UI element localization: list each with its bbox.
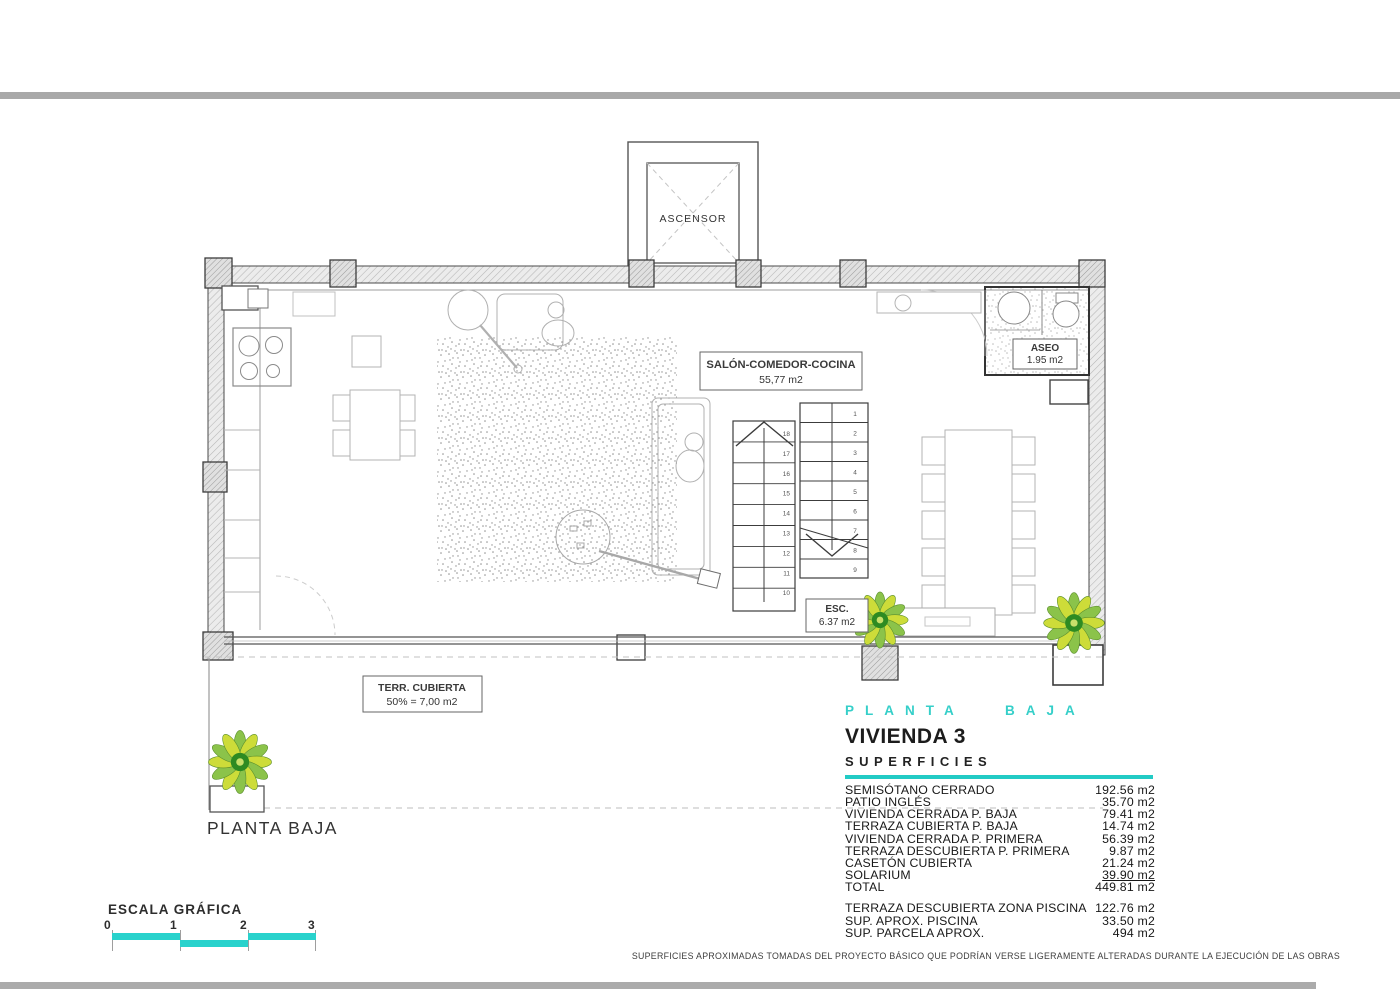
unit-title: VIVIENDA 3 bbox=[845, 725, 1155, 749]
surface-label: SUP. APROX. PISCINA bbox=[845, 915, 978, 927]
chair bbox=[1012, 585, 1035, 613]
surface-info-panel: PLANTA BAJA VIVIENDA 3 SUPERFICIES SEMIS… bbox=[845, 703, 1155, 939]
scale-bar bbox=[112, 933, 316, 949]
door-arc bbox=[276, 576, 335, 635]
scale-segment bbox=[180, 940, 248, 947]
chair bbox=[922, 511, 945, 539]
stair-step-number: 10 bbox=[783, 590, 791, 597]
aseo-label: ASEO bbox=[1031, 343, 1060, 354]
surface-label: TERRAZA DESCUBIERTA ZONA PISCINA bbox=[845, 902, 1087, 914]
surface-value: 494 m2 bbox=[1113, 927, 1155, 939]
surface-label: TOTAL bbox=[845, 881, 885, 893]
person-figure-sofa bbox=[685, 433, 703, 451]
counter bbox=[877, 292, 981, 313]
teal-rule bbox=[845, 775, 1153, 779]
stair-step-number: 5 bbox=[853, 489, 857, 496]
stair-step-number: 7 bbox=[853, 528, 857, 535]
salon-area: 55,77 m2 bbox=[759, 374, 803, 386]
floor-plan-drawing: ASCENSOR bbox=[0, 0, 1400, 989]
stair-step-number: 6 bbox=[853, 509, 857, 516]
superficies-row: TERRAZA DESCUBIERTA ZONA PISCINA122.76 m… bbox=[845, 902, 1155, 914]
floor-title: PLANTA BAJA bbox=[845, 703, 1155, 718]
superficies-row: SUP. PARCELA APROX.494 m2 bbox=[845, 927, 1155, 939]
surface-value: 14.74 m2 bbox=[1102, 820, 1155, 832]
esc-area: 6.37 m2 bbox=[819, 617, 856, 628]
stair-step-number: 14 bbox=[783, 511, 791, 518]
superficies-row: SUP. APROX. PISCINA33.50 m2 bbox=[845, 915, 1155, 927]
chair bbox=[922, 437, 945, 465]
staircase: 181716151413121110123456789 bbox=[733, 403, 868, 611]
bottom-divider-bar bbox=[0, 982, 1316, 989]
aseo-area: 1.95 m2 bbox=[1027, 355, 1064, 366]
ascensor-label: ASCENSOR bbox=[660, 213, 727, 225]
salon-label: SALÓN-COMEDOR-COCINA bbox=[706, 358, 855, 371]
stair-step-number: 12 bbox=[783, 550, 791, 557]
disclaimer-text: SUPERFICIES APROXIMADAS TOMADAS DEL PROY… bbox=[632, 951, 1340, 961]
person-figure-top bbox=[548, 302, 564, 318]
stair-step-number: 9 bbox=[853, 567, 857, 574]
scale-title: ESCALA GRÁFICA bbox=[108, 902, 242, 917]
stair-step-number: 13 bbox=[783, 531, 791, 538]
surface-label: SUP. PARCELA APROX. bbox=[845, 927, 984, 939]
plan-caption: PLANTA BAJA bbox=[207, 818, 338, 838]
surface-value: 122.76 m2 bbox=[1095, 902, 1155, 914]
scale-segment bbox=[112, 933, 180, 940]
stair-step-number: 18 bbox=[783, 431, 791, 438]
superficies-table: SEMISÓTANO CERRADO192.56 m2PATIO INGLÉS3… bbox=[845, 784, 1155, 893]
surface-label: TERRAZA CUBIERTA P. BAJA bbox=[845, 820, 1018, 832]
chair bbox=[1012, 548, 1035, 576]
terraza-area: 50% = 7,00 m2 bbox=[387, 696, 458, 708]
plant-icon bbox=[208, 730, 271, 793]
surface-value: 33.50 m2 bbox=[1102, 915, 1155, 927]
elevator-shaft: ASCENSOR bbox=[628, 142, 758, 268]
stair-step-number: 11 bbox=[783, 570, 790, 577]
window-band bbox=[205, 637, 1105, 657]
surface-value: 449.81 m2 bbox=[1095, 881, 1155, 893]
chair bbox=[1012, 437, 1035, 465]
superficies-row: VIVIENDA CERRADA P. PRIMERA56.39 m2 bbox=[845, 833, 1155, 845]
terraza-label: TERR. CUBIERTA bbox=[378, 682, 466, 694]
stair-step-number: 8 bbox=[853, 548, 857, 555]
scale-segment bbox=[248, 933, 316, 940]
page: ASCENSOR bbox=[0, 0, 1400, 989]
chair bbox=[1012, 474, 1035, 502]
kitchen-hob bbox=[233, 328, 291, 386]
counter-dividers bbox=[224, 430, 260, 592]
superficies-table-2: TERRAZA DESCUBIERTA ZONA PISCINA122.76 m… bbox=[845, 902, 1155, 938]
scale-tick-label: 3 bbox=[308, 918, 315, 932]
stair-step-number: 17 bbox=[783, 451, 791, 458]
toilet bbox=[1053, 301, 1079, 327]
superficies-row: TOTAL449.81 m2 bbox=[845, 881, 1155, 893]
breakfast-table bbox=[333, 336, 415, 460]
chair bbox=[922, 474, 945, 502]
dining-table bbox=[922, 430, 1035, 615]
scale-tick-label: 2 bbox=[240, 918, 247, 932]
esc-label: ESC. bbox=[825, 604, 849, 615]
stair-step-number: 1 bbox=[853, 411, 857, 418]
stair-step-number: 16 bbox=[783, 471, 791, 478]
surface-label: VIVIENDA CERRADA P. PRIMERA bbox=[845, 833, 1043, 845]
stair-step-number: 15 bbox=[783, 491, 791, 498]
superficies-row: TERRAZA CUBIERTA P. BAJA14.74 m2 bbox=[845, 820, 1155, 832]
scale-tick-label: 0 bbox=[104, 918, 111, 932]
stair-step-number: 2 bbox=[853, 431, 857, 438]
section-title: SUPERFICIES bbox=[845, 754, 1155, 769]
stair-step-number: 3 bbox=[853, 450, 857, 457]
washbasin bbox=[998, 292, 1030, 324]
chair bbox=[922, 548, 945, 576]
stair-step-number: 4 bbox=[853, 470, 857, 477]
surface-value: 56.39 m2 bbox=[1102, 833, 1155, 845]
chair bbox=[1012, 511, 1035, 539]
scale-tick-label: 1 bbox=[170, 918, 177, 932]
